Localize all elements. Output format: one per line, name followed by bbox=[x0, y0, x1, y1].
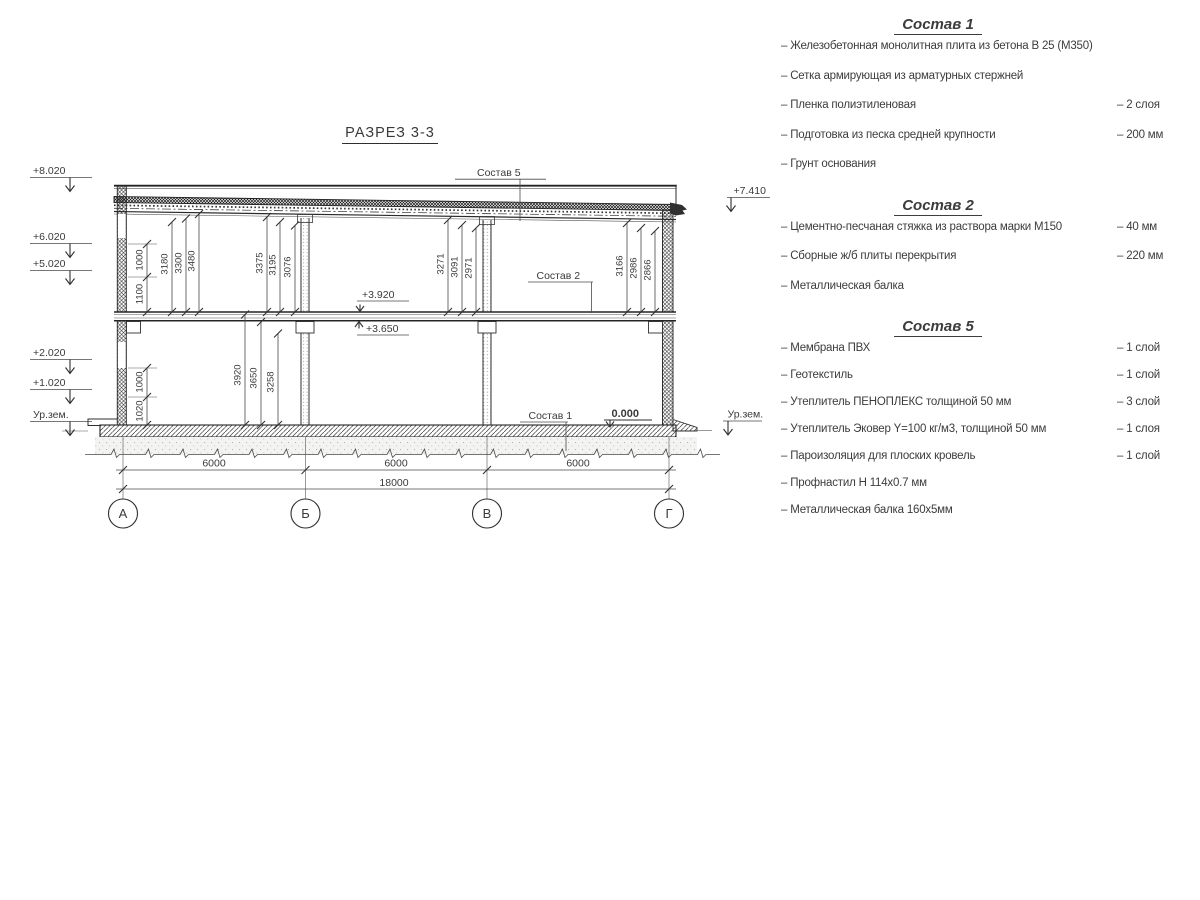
dim-label: 3195 bbox=[268, 254, 279, 275]
spec-item-text: – Сетка армирующая из арматурных стержне… bbox=[781, 70, 1117, 82]
spec-item: – Профнастил Н 114х0.7 мм bbox=[781, 477, 1181, 504]
elev-7410: +7.410 bbox=[727, 185, 771, 212]
vdim-bay1-upper: 3180 3300 3480 bbox=[160, 210, 204, 316]
spec-item-text: – Пароизоляция для плоских кровель bbox=[781, 450, 1117, 462]
spec-section-2: Состав 2 – Цементно-песчаная стяжка из р… bbox=[781, 197, 1181, 310]
spec-item: – Утеплитель ПЕНОПЛЕКС толщиной 50 мм– 3… bbox=[781, 396, 1181, 423]
elev-label: +5.020 bbox=[33, 258, 66, 270]
elev-label: +3.650 bbox=[366, 323, 399, 335]
spec-heading-5: Состав 5 bbox=[781, 318, 1095, 337]
spec-heading-2: Состав 2 bbox=[781, 197, 1095, 216]
spec-item-text: – Железобетонная монолитная плита из бет… bbox=[781, 40, 1117, 52]
leader-label: Состав 5 bbox=[477, 167, 521, 179]
elev-ground-right: Ур.зем. bbox=[723, 409, 763, 436]
spec-item-value: – 1 слой bbox=[1117, 342, 1181, 354]
spec-item-text: – Утеплитель Эковер Y=100 кг/м3, толщино… bbox=[781, 423, 1117, 435]
elev-label: +6.020 bbox=[33, 231, 66, 243]
dim-18000: 18000 bbox=[379, 477, 408, 489]
vdim-colV-upper: 3271 3091 2971 bbox=[436, 216, 481, 316]
dim-label: 3180 bbox=[160, 253, 171, 274]
spec-item: – Геотекстиль– 1 слой bbox=[781, 369, 1181, 396]
elev-3650: +3.650 bbox=[355, 322, 409, 336]
dim-label: 2866 bbox=[643, 259, 654, 280]
wall-left bbox=[117, 186, 127, 425]
spec-item-value: – 2 слоя bbox=[1117, 99, 1181, 111]
spec-item-value: – 220 мм bbox=[1117, 250, 1181, 262]
dim-label: 3076 bbox=[283, 256, 294, 277]
spec-item-text: – Сборные ж/б плиты перекрытия bbox=[781, 250, 1117, 262]
dim-label: 3258 bbox=[266, 371, 277, 392]
elev-ground-left: Ур.зем. bbox=[30, 409, 92, 436]
leader-sostav5: Состав 5 bbox=[455, 167, 546, 221]
roof-layers bbox=[114, 197, 687, 223]
axis-label-g: Г bbox=[665, 506, 672, 521]
elev-label: Ур.зем. bbox=[33, 409, 69, 421]
elev-label: +8.020 bbox=[33, 165, 66, 177]
spec-item-text: – Цементно-песчаная стяжка из раствора м… bbox=[781, 221, 1117, 233]
spec-item: – Утеплитель Эковер Y=100 кг/м3, толщино… bbox=[781, 423, 1181, 450]
dim-label: 3091 bbox=[450, 256, 461, 277]
spec-item: – Железобетонная монолитная плита из бет… bbox=[781, 40, 1181, 70]
elev-label: +2.020 bbox=[33, 347, 66, 359]
elev-label: 0.000 bbox=[612, 408, 640, 420]
section-drawing: РАЗРЕЗ 3-3 bbox=[0, 0, 790, 560]
leader-label: Состав 1 bbox=[529, 410, 573, 422]
axis-label-a: А bbox=[119, 506, 128, 521]
axis-label-b: Б bbox=[301, 506, 310, 521]
spec-section-5: Состав 5 – Мембрана ПВХ– 1 слой – Геотек… bbox=[781, 318, 1181, 531]
spec-item-value: – 3 слой bbox=[1117, 396, 1181, 408]
dim-label: 3650 bbox=[249, 367, 260, 388]
dim-label: 3271 bbox=[436, 253, 447, 274]
elev-label: +7.410 bbox=[734, 185, 767, 197]
vdim-colB-lower: 3920 3650 3258 bbox=[233, 311, 283, 430]
spec-item-text: – Подготовка из песка средней крупности bbox=[781, 129, 1117, 141]
dim-6000-1: 6000 bbox=[202, 458, 226, 470]
elev-2020: +2.020 bbox=[30, 347, 92, 374]
spec-panel: Состав 1 – Железобетонная монолитная пли… bbox=[781, 16, 1181, 540]
spec-section-1: Состав 1 – Железобетонная монолитная пли… bbox=[781, 16, 1181, 188]
vdim-colG-upper: 3166 2986 2866 bbox=[615, 219, 660, 316]
dim-label: 1000 bbox=[135, 371, 146, 392]
spec-item-text: – Пленка полиэтиленовая bbox=[781, 99, 1117, 111]
dim-label: 3920 bbox=[233, 364, 244, 385]
dim-label: 2971 bbox=[464, 257, 475, 278]
vdim-wall-lower: 1000 1020 bbox=[128, 364, 157, 429]
elev-label: Ур.зем. bbox=[728, 409, 764, 421]
dim-label: 3375 bbox=[255, 252, 266, 273]
elev-label: +3.920 bbox=[362, 289, 395, 301]
elev-3920: +3.920 bbox=[356, 289, 409, 312]
drawing-sheet: { "drawing": { "title": "РАЗРЕЗ 3-3", "a… bbox=[0, 0, 1200, 900]
spec-item-text: – Грунт основания bbox=[781, 158, 1117, 170]
spec-item: – Пленка полиэтиленовая– 2 слоя bbox=[781, 99, 1181, 129]
dim-label: 3166 bbox=[615, 255, 626, 276]
dim-label: 2986 bbox=[629, 257, 640, 278]
spec-heading-1: Состав 1 bbox=[781, 16, 1095, 35]
spec-item-text: – Мембрана ПВХ bbox=[781, 342, 1117, 354]
spec-item-value: – 1 слоя bbox=[1117, 423, 1181, 435]
spec-item-value: – 1 слой bbox=[1117, 369, 1181, 381]
spec-item: – Металлическая балка 160х5мм bbox=[781, 504, 1181, 531]
elev-zero: 0.000 bbox=[604, 408, 652, 427]
section-title-text: РАЗРЕЗ 3-3 bbox=[345, 125, 435, 141]
spec-item: – Сетка армирующая из арматурных стержне… bbox=[781, 70, 1181, 100]
spec-item-text: – Металлическая балка bbox=[781, 280, 1117, 292]
axis-label-v: В bbox=[483, 506, 492, 521]
elev-1020: +1.020 bbox=[30, 377, 92, 404]
leader-label: Состав 2 bbox=[537, 270, 581, 282]
spec-item-value: – 1 слой bbox=[1117, 450, 1181, 462]
spec-item: – Цементно-песчаная стяжка из раствора м… bbox=[781, 221, 1181, 251]
elev-5020: +5.020 bbox=[30, 258, 92, 285]
vdim-colB-upper: 3375 3195 3076 bbox=[255, 213, 300, 316]
dim-label: 1020 bbox=[135, 400, 146, 421]
spec-item: – Подготовка из песка средней крупности–… bbox=[781, 129, 1181, 159]
spec-item-value: – 40 мм bbox=[1117, 221, 1181, 233]
elev-8020: +8.020 bbox=[30, 165, 92, 192]
spec-item: – Грунт основания bbox=[781, 158, 1181, 188]
spec-item: – Мембрана ПВХ– 1 слой bbox=[781, 342, 1181, 369]
dim-6000-3: 6000 bbox=[566, 458, 590, 470]
dim-label: 1000 bbox=[135, 249, 146, 270]
spec-item: – Сборные ж/б плиты перекрытия– 220 мм bbox=[781, 250, 1181, 280]
ground-slab bbox=[62, 419, 712, 437]
elev-6020: +6.020 bbox=[30, 231, 92, 258]
elev-label: +1.020 bbox=[33, 377, 66, 389]
spec-item: – Металлическая балка bbox=[781, 280, 1181, 310]
leader-sostav2: Состав 2 bbox=[528, 270, 593, 313]
sand-layer bbox=[85, 437, 720, 458]
axis-bubbles: А Б В Г bbox=[109, 499, 684, 528]
dim-label: 3480 bbox=[187, 250, 198, 271]
spec-heading-text: Состав 1 bbox=[894, 16, 982, 35]
spec-item: – Пароизоляция для плоских кровель– 1 сл… bbox=[781, 450, 1181, 477]
spec-heading-text: Состав 5 bbox=[894, 318, 982, 337]
vdim-wall-upper: 1000 1100 bbox=[128, 240, 157, 316]
dim-label: 3300 bbox=[174, 252, 185, 273]
spec-item-value: – 200 мм bbox=[1117, 129, 1181, 141]
drawing-title: РАЗРЕЗ 3-3 bbox=[342, 125, 438, 144]
spec-heading-text: Состав 2 bbox=[894, 197, 982, 216]
spec-item-text: – Профнастил Н 114х0.7 мм bbox=[781, 477, 1117, 489]
dim-label: 1100 bbox=[135, 284, 146, 304]
spec-item-text: – Геотекстиль bbox=[781, 369, 1117, 381]
spec-item-text: – Металлическая балка 160х5мм bbox=[781, 504, 1117, 516]
spec-item-text: – Утеплитель ПЕНОПЛЕКС толщиной 50 мм bbox=[781, 396, 1117, 408]
dim-6000-2: 6000 bbox=[384, 458, 408, 470]
